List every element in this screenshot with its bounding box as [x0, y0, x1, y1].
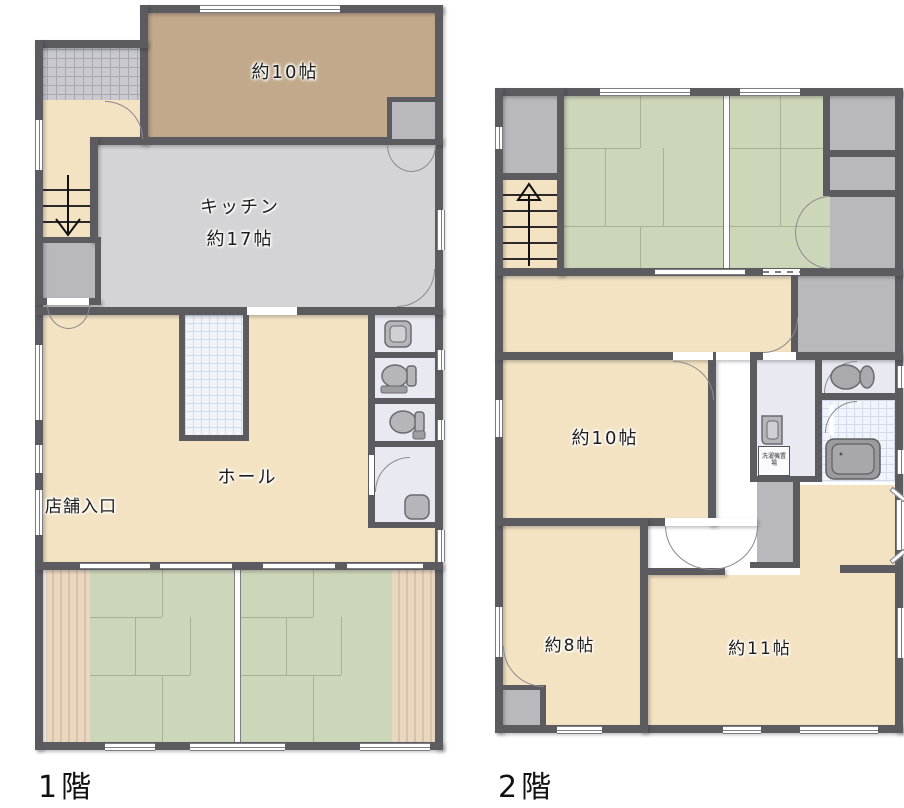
f2-closet-mid-east — [798, 276, 895, 352]
f1-east-window4 — [437, 530, 445, 562]
f1-toilet-icon-upper — [377, 360, 421, 396]
floor1-plan: 約10帖 キッチン 約17帖 ホール 店舗入口 — [35, 5, 443, 755]
f2-east-window-room11 — [897, 608, 904, 658]
f2-toilet-icon — [828, 362, 878, 392]
f1-tatami-sliding-partition — [234, 570, 241, 742]
f1-tatami-south-window1 — [105, 743, 155, 751]
f1-east-window1 — [437, 210, 445, 250]
f1-east-window3 — [437, 420, 445, 440]
f2-tatami-north-window1 — [600, 88, 690, 96]
floor1-caption: 1階 — [38, 762, 95, 806]
f2-closet-topleft — [498, 95, 560, 175]
f1-tatami-south-window2 — [190, 743, 285, 751]
f2-bay-window — [896, 500, 904, 550]
f1-east-window2 — [437, 350, 445, 370]
f2-stairs-up-arrow-icon — [498, 180, 560, 270]
f1-tatami-south-window3 — [360, 743, 430, 751]
f2-bathtub-icon — [825, 438, 881, 480]
f1-stairs-down-arrow-icon — [38, 173, 101, 243]
f2-closet-mid2 — [757, 482, 793, 562]
f2-south-window3 — [800, 726, 878, 734]
f2-closet-east-top — [830, 95, 895, 268]
f2-room8-closet — [503, 690, 540, 725]
f2-west-window3 — [495, 607, 503, 657]
f2-tatami-left-floor — [560, 95, 723, 268]
f1-kitchen-size-label: 約17帖 — [165, 225, 315, 251]
f2-tatami-sliding-partition — [723, 95, 730, 268]
f2-washbasin-icon — [759, 414, 785, 446]
f1-counter-tile — [185, 315, 243, 435]
f2-tatami-south-closet-slider — [763, 269, 800, 275]
f1-tatami-wood-edge-left — [46, 570, 90, 742]
f1-washbasin-icon-top — [383, 319, 413, 349]
f1-hall-tatami-slider1 — [80, 563, 150, 569]
f2-east-window-toilet — [897, 366, 904, 388]
f1-room10-closet — [387, 97, 435, 139]
floorplan-page: { "floor1": { "label": "1階", "rooms": { … — [0, 0, 904, 808]
f1-hall-tatami-slider2 — [160, 563, 232, 569]
f1-vestibule-floor — [38, 243, 101, 298]
f2-laundry-space: 洗濯機置場 — [758, 446, 790, 476]
f2-hall-double-door-left — [665, 526, 712, 570]
f1-shop-entrance-label: 店舗入口 — [45, 492, 165, 517]
f1-hall-label: ホール — [180, 463, 315, 489]
f1-kitchen-name-label: キッチン — [165, 193, 315, 219]
f1-room10-top-window — [200, 5, 340, 13]
f2-room8-label: 約8帖 — [505, 631, 635, 656]
f2-room10-label: 約10帖 — [530, 424, 680, 450]
floor2-plan: 洗濯機置場 約10帖 約8帖 約11帖 — [495, 88, 903, 748]
f1-washbasin-icon-bottom — [403, 493, 431, 521]
f2-east-window-bath — [897, 450, 904, 474]
f2-south-window1 — [557, 726, 602, 734]
f2-west-window1 — [495, 127, 503, 149]
f1-west-window3 — [35, 445, 43, 473]
f1-west-window1 — [35, 120, 43, 170]
f1-entrance-tile-floor — [38, 40, 148, 100]
f1-tatami-wood-edge-right — [392, 570, 435, 742]
f2-room11-label: 約11帖 — [690, 634, 830, 659]
f1-shop-door — [35, 490, 43, 535]
floor2-caption: 2階 — [498, 762, 555, 806]
f2-hallway-floor — [498, 276, 793, 352]
f2-tatami-north-window2 — [740, 88, 800, 96]
f1-hall-tatami-slider3 — [263, 563, 335, 569]
f2-south-window2 — [723, 726, 761, 734]
f2-alcove-floor — [800, 485, 895, 575]
f2-tatami-south-slider — [655, 269, 745, 275]
f1-hall-tatami-slider4 — [347, 563, 423, 569]
f1-west-window2 — [35, 345, 43, 420]
f2-west-window2 — [495, 400, 503, 437]
f1-room10-label: 約10帖 — [210, 58, 360, 84]
f1-toilet-icon-lower — [383, 405, 427, 441]
